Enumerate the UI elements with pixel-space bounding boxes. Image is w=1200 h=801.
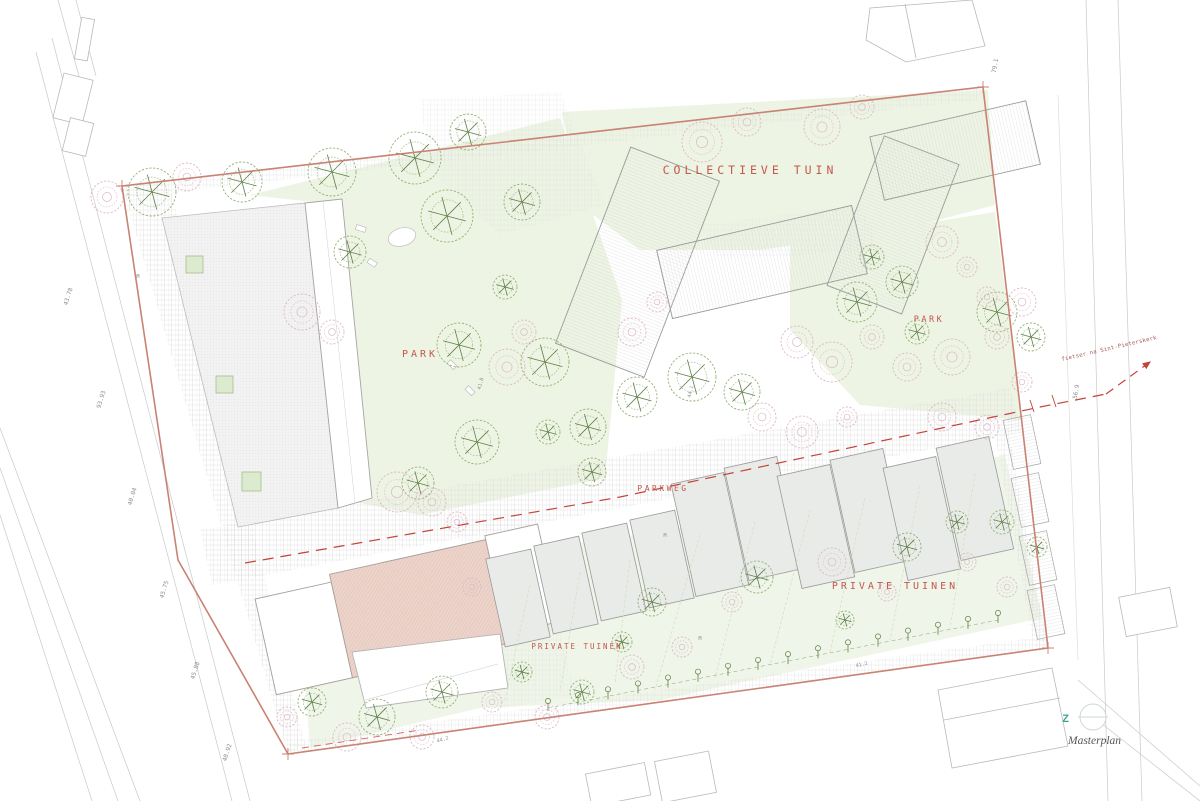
dimension-text: 79.1 [991,58,1000,74]
label-park-west: PARK [402,349,438,360]
dimension-text: M [698,636,701,642]
dimension-text: 56.9 [1072,384,1081,400]
masterplan-drawing: COLLECTIEVE TUINPARKPARKPARKWEGPRIVATE T… [0,0,1200,801]
dimension-text: M [136,274,139,280]
route-arrow [1106,362,1150,394]
label-private-tuinen-west: PRIVATE TUINEN [531,642,622,651]
tree-blossom [748,403,776,431]
dimension-text: 44.2 [436,736,449,745]
dimension-text: M [663,533,666,539]
label-collectieve-tuin: COLLECTIEVE TUIN [663,163,838,177]
dimension-text: 48.92 [222,743,234,763]
dimension-text: 44.1 [687,385,696,398]
masterplan-svg: COLLECTIEVE TUINPARKPARKPARKWEGPRIVATE T… [0,0,1200,801]
drawing-caption: Masterplan [1067,735,1121,747]
dimension-text: 40.04 [127,487,139,507]
dimension-text: 45.75 [159,580,171,600]
tree-blossom [1008,288,1036,316]
tree-green [1017,323,1045,351]
dimension-text: 43.78 [63,287,75,307]
dimension-text: 93.93 [96,390,108,410]
label-private-tuinen-east: PRIVATE TUINEN [832,581,958,592]
title-block: Z Masterplan [1062,704,1121,747]
label-route-annotation: fietser na Sint-Pieterskerk [1061,335,1158,363]
label-park-east: PARK [914,315,944,325]
compass-letter: Z [1062,713,1069,725]
tree-green [617,377,657,417]
label-parkweg: PARKWEG [637,484,688,493]
